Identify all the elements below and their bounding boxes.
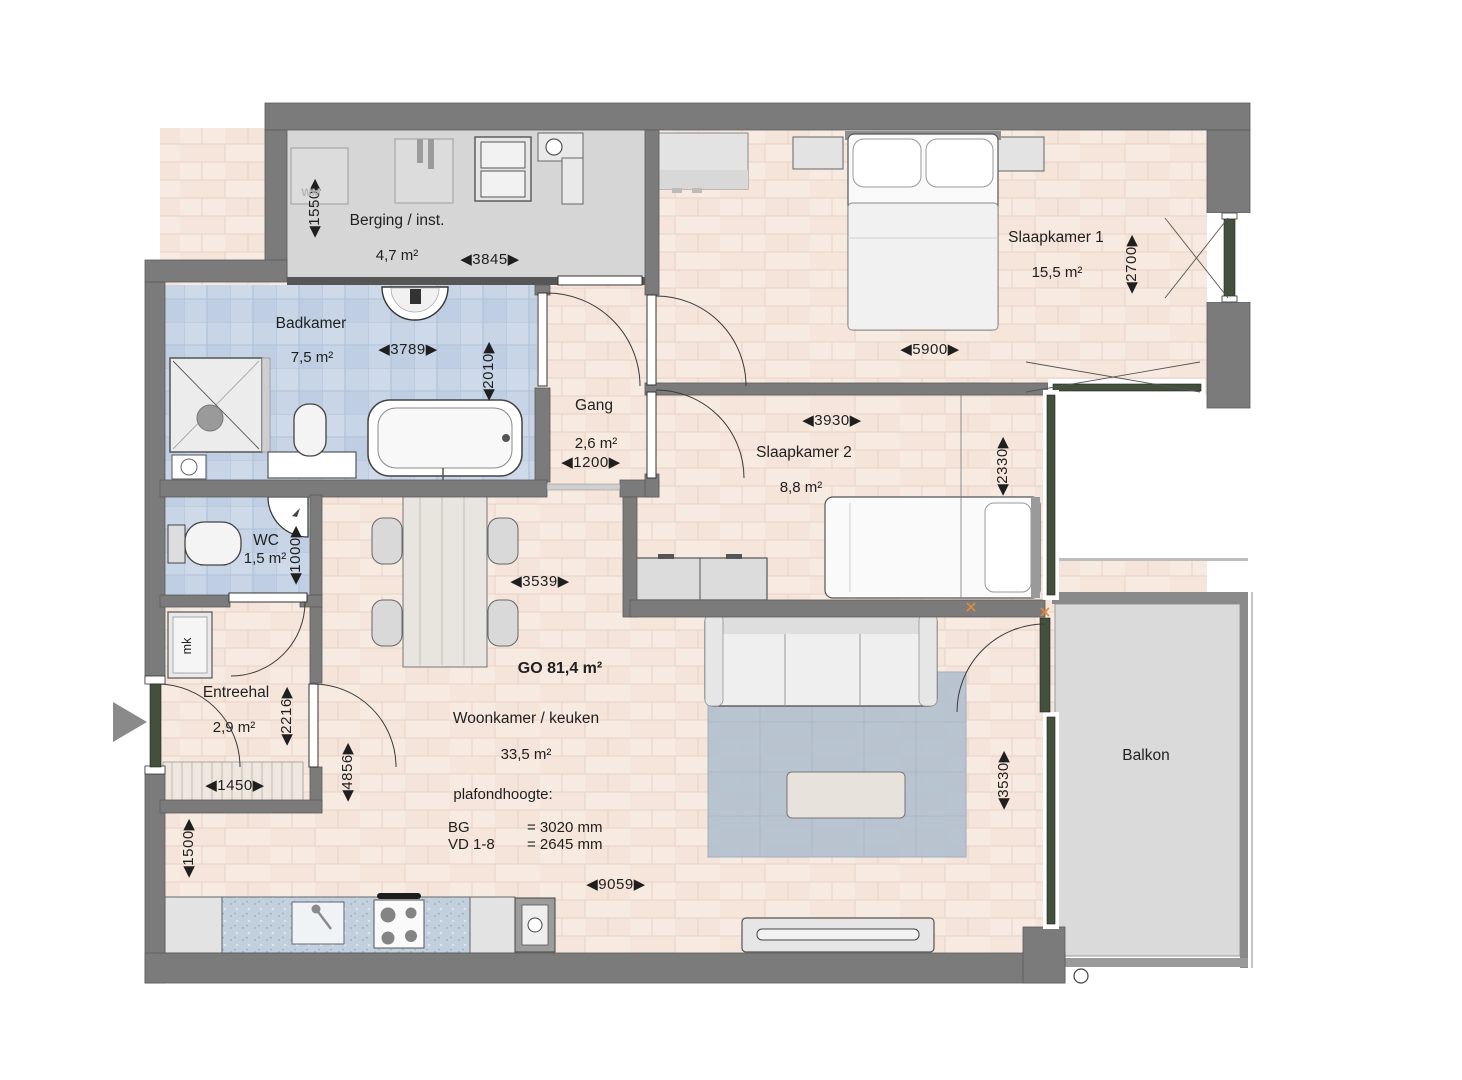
area-label-wc: 1,5 m² xyxy=(244,550,287,567)
dining-table xyxy=(403,495,487,667)
ceiling-height-title: plafondhoogte: xyxy=(453,786,552,803)
dim-badkamer-height: ◀2010▶ xyxy=(480,341,497,400)
dim-balkon-height: ◀3530▶ xyxy=(995,750,1012,809)
toilet xyxy=(294,404,326,456)
dim-gang-width: ◀1200▶ xyxy=(561,454,620,471)
wardrobe-handle xyxy=(672,188,682,193)
dim-sk1-width: ◀5900▶ xyxy=(900,341,959,358)
appliance-dial xyxy=(528,918,542,932)
oven-handle xyxy=(377,893,421,899)
area-label-berging: 4,7 m² xyxy=(376,247,419,264)
wall-wc-bottom-left xyxy=(160,595,230,607)
sideboard-handle xyxy=(726,554,742,559)
area-label-entreehal: 2,9 m² xyxy=(213,719,256,736)
room-label-wc: WC xyxy=(253,532,279,549)
burner xyxy=(405,930,417,942)
installation-unit xyxy=(395,139,453,203)
cabinet-drawer xyxy=(481,171,525,197)
bed-headboard xyxy=(1031,497,1040,598)
area-label-badkamer: 7,5 m² xyxy=(291,349,334,366)
dim-living-height: ◀4856▶ xyxy=(339,742,356,801)
area-label-slaapkamer1: 15,5 m² xyxy=(1032,264,1083,281)
wall-berging-left xyxy=(265,130,287,279)
balcony-floor xyxy=(1055,604,1240,956)
nightstand-left xyxy=(793,137,843,169)
chair xyxy=(488,518,518,564)
sofa-armrest xyxy=(705,614,723,706)
dim-kitchen-height: ◀1500▶ xyxy=(180,818,197,877)
sk2-door-leaf xyxy=(647,392,656,478)
window-sk2-east-frame xyxy=(1047,395,1055,595)
window-living-east-frame xyxy=(1047,717,1055,924)
dim-berging-width: ◀3845▶ xyxy=(460,251,519,268)
room-label-badkamer: Badkamer xyxy=(276,315,347,332)
bed-blanket xyxy=(848,203,998,330)
pillow xyxy=(985,503,1031,592)
wall-right-upper xyxy=(1207,130,1250,213)
cabinet-drawer xyxy=(481,142,525,168)
pillow xyxy=(853,139,921,187)
wall-corner-br xyxy=(1023,927,1065,983)
berging-counter-side xyxy=(562,158,583,204)
room-label-slaapkamer1: Slaapkamer 1 xyxy=(1008,229,1104,246)
entrance-arrow-icon xyxy=(113,702,147,742)
kitchen-end-right xyxy=(470,897,515,953)
kitchen-end-left xyxy=(165,897,222,953)
dim-sk2-width: ◀3930▶ xyxy=(802,412,861,429)
dim-sk2-height: ◀2330▶ xyxy=(994,436,1011,495)
area-label-gang: 2,6 m² xyxy=(575,435,618,452)
wall-right-lower xyxy=(1207,302,1250,408)
tv-console-slot xyxy=(757,929,919,940)
chair xyxy=(488,600,518,646)
wardrobe-shelf xyxy=(652,170,748,189)
wall-sk2-left xyxy=(623,497,637,617)
wall-bottom xyxy=(145,953,1065,983)
balcony-railing-right xyxy=(1240,592,1248,968)
room-label-balkon: Balkon xyxy=(1122,747,1169,764)
wall-hal-right-upper xyxy=(310,607,322,683)
door-jamb xyxy=(145,676,165,684)
shower-door xyxy=(262,358,270,452)
ceiling-vd-value: = 2645 mm xyxy=(527,836,602,853)
meter-cupboard-label: mk xyxy=(180,637,194,654)
ceiling-vd-label: VD 1-8 xyxy=(448,836,495,853)
wardrobe-handle xyxy=(692,188,702,193)
berging-door-leaf xyxy=(558,276,642,285)
installation-pipe xyxy=(428,139,434,169)
chair xyxy=(372,518,402,564)
total-area-label: GO 81,4 m² xyxy=(518,660,602,677)
room-label-slaapkamer2: Slaapkamer 2 xyxy=(756,444,852,461)
wall-bath-right xyxy=(535,388,550,482)
stove xyxy=(374,900,424,948)
kitchen xyxy=(165,893,555,953)
sk1-door-leaf xyxy=(647,295,656,385)
berging-sink xyxy=(546,139,562,155)
ceiling-bg-label: BG xyxy=(448,819,470,836)
wc-cistern xyxy=(168,525,185,563)
pillow xyxy=(926,139,993,187)
dim-wc-height: ◀1000▶ xyxy=(287,525,304,584)
wall-sk2-bottom xyxy=(630,600,1045,617)
gang-opening-threshold xyxy=(547,484,620,490)
wc-door-leaf xyxy=(229,593,307,602)
dim-badkamer-width: ◀3789▶ xyxy=(378,341,437,358)
washbasin-faucet xyxy=(410,289,421,304)
wall-top xyxy=(265,103,1250,130)
room-label-entreehal: Entreehal xyxy=(203,684,269,701)
floorplan-svg: Berging / inst. 4,7 m² ◀3845▶ ◀1550▶ WM … xyxy=(0,0,1462,1080)
dim-hal-height: ◀2216▶ xyxy=(278,686,295,745)
hand-basin-bowl xyxy=(181,459,197,475)
sofa-armrest xyxy=(919,614,937,706)
window-sk1-frame xyxy=(1224,217,1235,298)
window-jamb xyxy=(1222,296,1237,302)
balcony xyxy=(1052,558,1252,983)
dim-sk1-height: ◀2700▶ xyxy=(1123,234,1140,293)
ceiling-bg-value: = 3020 mm xyxy=(527,819,602,836)
burner xyxy=(382,932,395,945)
balcony-edge xyxy=(1052,558,1248,561)
hall-door-leaf xyxy=(309,684,318,767)
wall-bedroom-divider xyxy=(645,383,1048,395)
area-label-slaapkamer2: 8,8 m² xyxy=(780,479,823,496)
kitchen-worktop xyxy=(222,897,470,953)
wall-wc-right xyxy=(310,495,322,595)
burner xyxy=(406,908,417,919)
nightstand-right xyxy=(998,137,1044,171)
balcony-drain xyxy=(1074,969,1088,983)
front-door-leaf xyxy=(150,684,161,767)
wall-living-top xyxy=(160,480,547,497)
area-label-woonkamer: 33,5 m² xyxy=(501,746,552,763)
balcony-railing-bottom xyxy=(1052,958,1248,967)
chair xyxy=(372,600,402,646)
room-label-gang: Gang xyxy=(575,397,613,414)
balcony-door-leaf xyxy=(1040,618,1050,712)
window-jamb xyxy=(1222,213,1237,219)
exterior-recess xyxy=(1058,395,1207,560)
coffee-table xyxy=(787,772,905,818)
burner xyxy=(381,908,396,923)
wall-topleft-stub xyxy=(145,260,287,282)
window-sk1-south-frame xyxy=(1053,384,1201,391)
sideboard-handle xyxy=(658,554,674,559)
wall-left-lower xyxy=(145,767,165,983)
bathtub-inner xyxy=(378,408,512,468)
dim-living-width: ◀9059▶ xyxy=(586,876,645,893)
room-label-woonkamer: Woonkamer / keuken xyxy=(453,710,599,727)
room-label-berging: Berging / inst. xyxy=(350,212,445,229)
wall-hal-bottom xyxy=(160,800,322,813)
bathroom-door-leaf xyxy=(538,293,547,386)
shower-drain xyxy=(197,405,223,431)
bathtub-faucet xyxy=(502,434,510,442)
washing-machine-label: WM xyxy=(301,187,321,199)
wc-toilet xyxy=(185,522,241,565)
balcony-railing-top xyxy=(1052,592,1248,604)
floorplan-page: Berging / inst. 4,7 m² ◀3845▶ ◀1550▶ WM … xyxy=(0,0,1462,1080)
wall-gang-right-upper xyxy=(645,130,659,295)
dim-dining-width: ◀3539▶ xyxy=(510,573,569,590)
dim-hal-width: ◀1450▶ xyxy=(205,777,264,794)
installation-pipe xyxy=(417,139,423,163)
